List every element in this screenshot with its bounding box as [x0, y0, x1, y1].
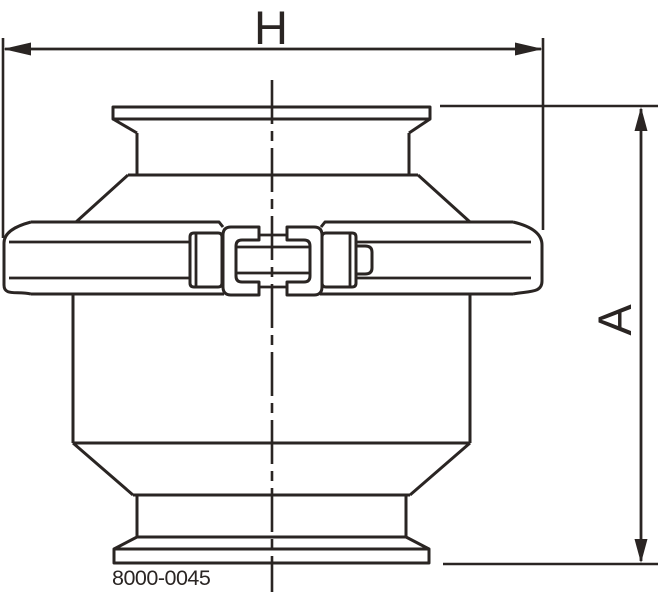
lower-cone-right — [410, 443, 470, 495]
clamp-cap-left — [4, 222, 31, 294]
bolt-tip — [356, 246, 372, 274]
bottom-ferrule-slant-right — [406, 537, 429, 549]
technical-drawing-page: H A — [0, 0, 660, 592]
lower-cone-left — [73, 443, 133, 495]
clamp-lug-bracket-right — [287, 227, 322, 295]
top-ferrule-bevel-right — [409, 119, 430, 133]
h-dimension-label: H — [254, 1, 288, 54]
upper-cone-left — [76, 175, 128, 222]
a-arrow-bottom — [635, 539, 648, 563]
valve-technical-drawing: H A — [0, 0, 660, 592]
a-dimension: A — [440, 106, 658, 564]
a-dimension-label: A — [588, 304, 641, 336]
clamp-cap-right — [513, 222, 542, 294]
bottom-ferrule-slant-left — [114, 537, 137, 549]
clamp-band-top-left — [31, 222, 223, 227]
h-arrow-right — [515, 43, 543, 56]
upper-cone-right — [418, 175, 470, 222]
top-ferrule-bevel-left — [113, 119, 137, 133]
clamp-bolt-assembly — [190, 227, 372, 295]
part-number-label: 8000-0045 — [112, 566, 211, 590]
h-arrow-left — [3, 43, 31, 56]
clamp-lug-bracket-left — [223, 227, 259, 295]
clamp-band-top-right — [321, 222, 513, 227]
a-arrow-top — [635, 107, 648, 131]
